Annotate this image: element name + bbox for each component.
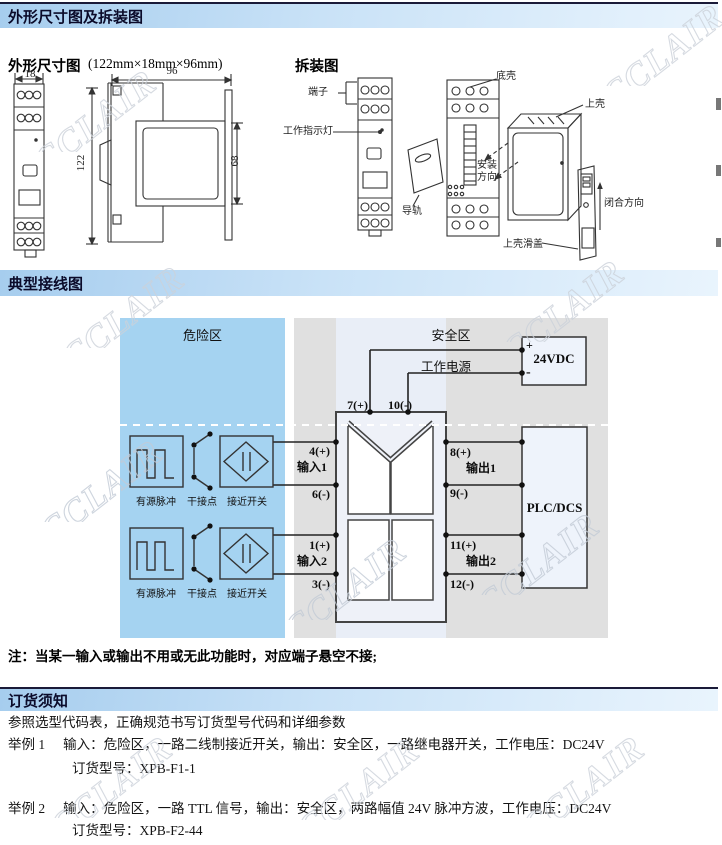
- ordering-example-2: 举例 2输入：危险区，一路 TTL 信号，输出：安全区，两路幅值 24V 脉冲方…: [8, 797, 611, 817]
- label-close-direction: 闭合方向: [604, 198, 644, 210]
- ordering-model-2: 订货型号：XPB-F2-44: [72, 819, 203, 839]
- sensor2-pulse-label: 有源脉冲: [124, 585, 188, 600]
- example-label: 举例 2: [8, 801, 45, 816]
- power-voltage: 24VDC: [522, 351, 586, 367]
- sensor2-proximity-label: 接近开关: [217, 585, 277, 600]
- dim-width-label: 18: [14, 68, 46, 80]
- terminal-7: 7(+): [334, 398, 368, 413]
- datasheet-page: 外形尺寸图及拆装图 外形尺寸图 (122mm×18mm×96mm) 拆装图: [0, 0, 722, 845]
- input1-name: 输入1: [275, 458, 327, 475]
- label-install-direction: 安装方向: [477, 160, 499, 184]
- terminal-input1-neg: 6(-): [278, 487, 330, 502]
- label-rail: 导轨: [402, 206, 422, 218]
- section-title: 订货须知: [8, 690, 68, 711]
- terminal-input2-neg: 3(-): [278, 577, 330, 592]
- section-title: 典型接线图: [8, 273, 83, 294]
- safe-zone-title: 安全区: [294, 325, 608, 344]
- terminal-output2-neg: 12(-): [450, 577, 474, 592]
- label-bottom-shell: 底壳: [496, 71, 516, 83]
- terminal-output2-pos: 11(+): [450, 538, 476, 553]
- input2-name: 输入2: [275, 552, 327, 569]
- sensor1-proximity-label: 接近开关: [217, 493, 277, 508]
- power-minus-sign: -: [526, 365, 531, 381]
- label-terminal: 端子: [308, 87, 328, 99]
- section-header-dimensions: 外形尺寸图及拆装图: [0, 2, 718, 28]
- terminal-input2-pos: 1(+): [278, 538, 330, 553]
- terminal-output1-neg: 9(-): [450, 486, 468, 501]
- ordering-example-1: 举例 1输入：危险区，一路二线制接近开关，输出：安全区，一路继电器开关，工作电压…: [8, 733, 605, 753]
- power-supply-label: 工作电源: [417, 356, 475, 375]
- dim-depth-label: 96: [150, 65, 194, 77]
- wiring-note: 注：当某一输入或输出不用或无此功能时，对应端子悬空不接;: [8, 645, 377, 665]
- label-indicator: 工作指示灯: [283, 126, 333, 138]
- plc-dcs-label: PLC/DCS: [522, 500, 587, 516]
- section-title: 外形尺寸图及拆装图: [8, 6, 143, 27]
- label-top-shell: 上壳: [585, 99, 605, 111]
- hazard-zone-title: 危险区: [120, 325, 285, 344]
- dimension-drawings: [0, 70, 722, 265]
- section-header-ordering: 订货须知: [0, 687, 718, 711]
- wiring-diagram: 危险区 安全区 工作电源 + 24VDC - 7(+) 10(-) 4(+) 输…: [120, 318, 608, 640]
- sensor1-pulse-label: 有源脉冲: [124, 493, 188, 508]
- output2-name: 输出2: [466, 552, 496, 569]
- ordering-model-1: 订货型号：XPB-F1-1: [72, 757, 196, 777]
- example-desc: 输入：危险区，一路二线制接近开关，输出：安全区，一路继电器开关，工作电压：DC2…: [63, 737, 605, 752]
- dim-face-label: 68: [229, 148, 241, 174]
- example-label: 举例 1: [8, 737, 45, 752]
- label-slide-cover: 上壳滑盖: [503, 239, 543, 251]
- dim-height-label: 122: [75, 148, 87, 178]
- example-desc: 输入：危险区，一路 TTL 信号，输出：安全区，两路幅值 24V 脉冲方波，工作…: [63, 801, 611, 816]
- terminal-output1-pos: 8(+): [450, 445, 471, 460]
- output1-name: 输出1: [466, 459, 496, 476]
- ordering-intro: 参照选型代码表，正确规范书写订货型号代码和详细参数: [8, 711, 346, 731]
- terminal-input1-pos: 4(+): [278, 444, 330, 459]
- section-header-wiring: 典型接线图: [0, 270, 718, 296]
- terminal-10: 10(-): [378, 398, 412, 413]
